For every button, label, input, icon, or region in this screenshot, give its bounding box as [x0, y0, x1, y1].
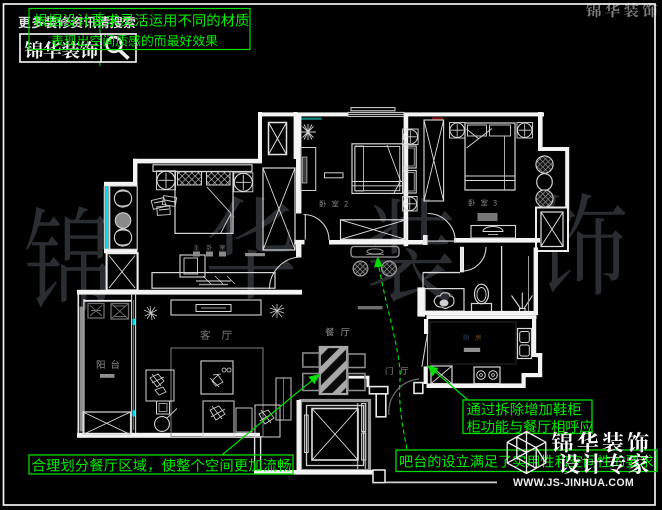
svg-text:WWW.JS-JINHUA.COM: WWW.JS-JINHUA.COM — [513, 477, 634, 489]
